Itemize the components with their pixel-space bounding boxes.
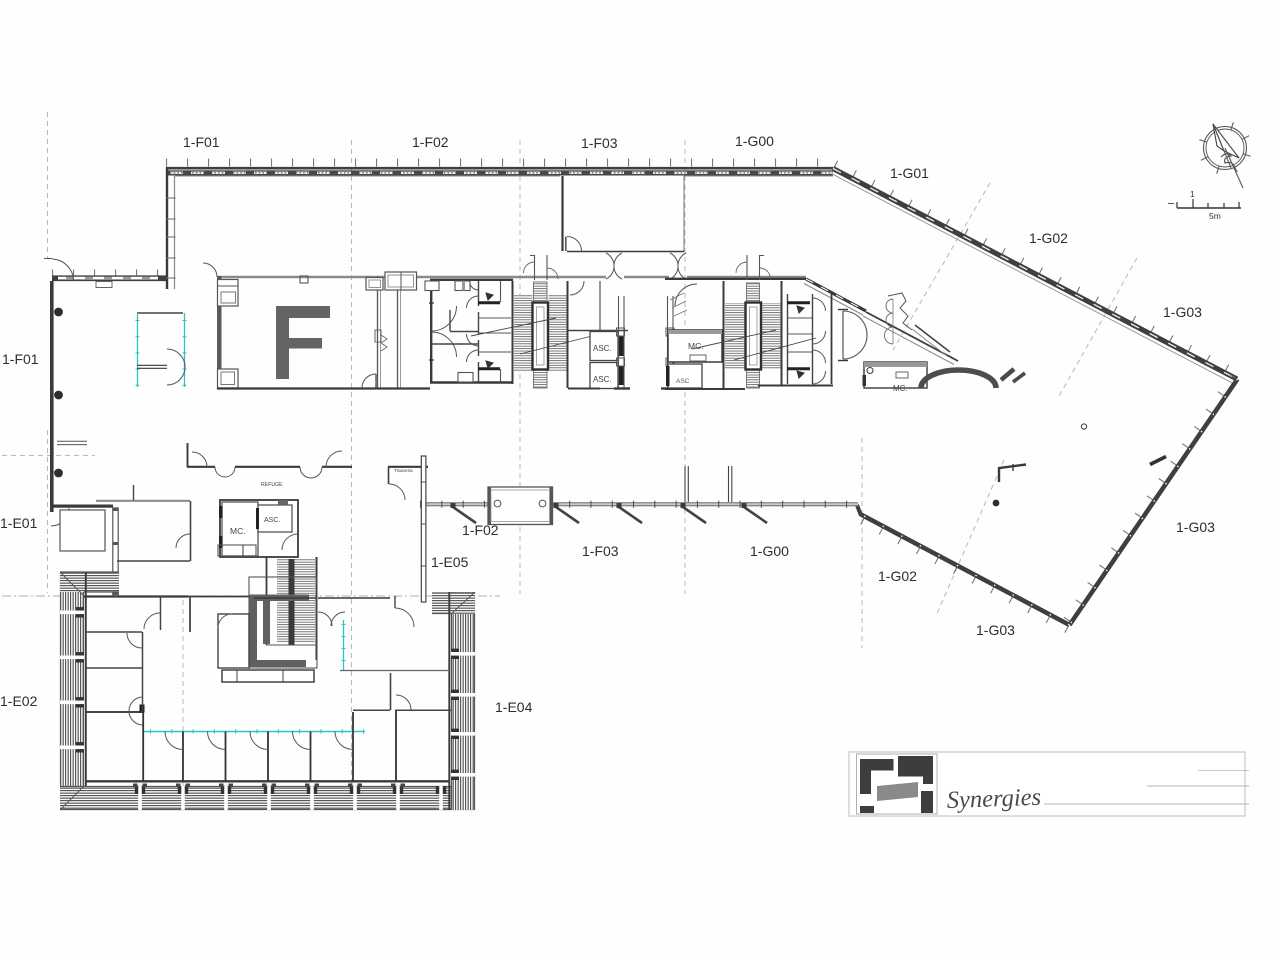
svg-text:1-F02: 1-F02 (412, 134, 449, 150)
svg-text:1-G00: 1-G00 (735, 133, 774, 149)
svg-text:MC.: MC. (688, 341, 704, 351)
svg-text:1-F03: 1-F03 (581, 135, 618, 151)
svg-text:1-F03: 1-F03 (582, 543, 619, 559)
svg-text:1-F01: 1-F01 (2, 351, 39, 367)
svg-text:5m: 5m (1209, 211, 1221, 221)
svg-text:1-E01: 1-E01 (0, 515, 38, 531)
svg-text:ASC.: ASC. (593, 344, 612, 353)
svg-text:1-E05: 1-E05 (431, 554, 469, 570)
svg-text:Synergies: Synergies (946, 784, 1041, 814)
svg-text:1-G01: 1-G01 (890, 165, 929, 181)
svg-text:1-F01: 1-F01 (183, 134, 220, 150)
svg-text:ASC.: ASC. (593, 375, 612, 384)
svg-text:MC.: MC. (893, 384, 908, 393)
svg-text:1: 1 (1190, 189, 1195, 199)
svg-text:ASC.: ASC. (264, 517, 280, 524)
svg-text:ASC: ASC (676, 378, 690, 385)
svg-text:Tisaneria: Tisaneria (394, 468, 413, 473)
svg-text:1-G00: 1-G00 (750, 543, 789, 559)
svg-text:1-E02: 1-E02 (0, 693, 38, 709)
svg-text:1-G03: 1-G03 (1163, 304, 1202, 320)
svg-text:1-E04: 1-E04 (495, 699, 533, 715)
svg-text:REFUGE: REFUGE (261, 482, 283, 488)
svg-text:1-G02: 1-G02 (878, 568, 917, 584)
svg-text:1-G03: 1-G03 (1176, 519, 1215, 535)
svg-text:1-G03: 1-G03 (976, 622, 1015, 638)
svg-text:MC.: MC. (230, 526, 246, 536)
svg-text:1-G02: 1-G02 (1029, 230, 1068, 246)
